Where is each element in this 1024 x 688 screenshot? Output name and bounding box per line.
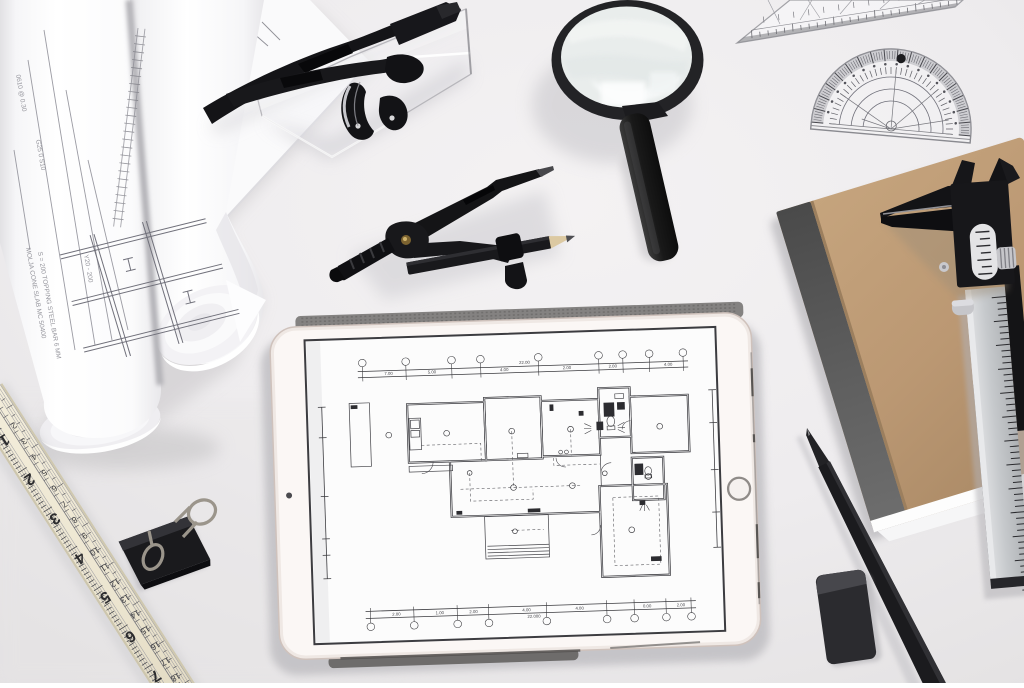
svg-text:2.00: 2.00 <box>469 609 478 614</box>
svg-text:5.00: 5.00 <box>428 369 437 374</box>
svg-text:22.00: 22.00 <box>519 360 531 365</box>
svg-text:2.00: 2.00 <box>677 602 686 607</box>
svg-text:1.00: 1.00 <box>436 610 445 615</box>
svg-text:4.00: 4.00 <box>522 607 531 612</box>
svg-text:7.00: 7.00 <box>384 371 393 376</box>
svg-text:22.000: 22.000 <box>527 614 541 619</box>
svg-text:0.00: 0.00 <box>643 603 652 608</box>
svg-text:4.00: 4.00 <box>500 367 509 372</box>
svg-text:4.00: 4.00 <box>575 606 584 611</box>
svg-text:2.00: 2.00 <box>392 612 401 617</box>
svg-text:2.00: 2.00 <box>563 365 572 370</box>
svg-text:2.00: 2.00 <box>608 363 617 368</box>
svg-text:4.00: 4.00 <box>664 362 673 367</box>
